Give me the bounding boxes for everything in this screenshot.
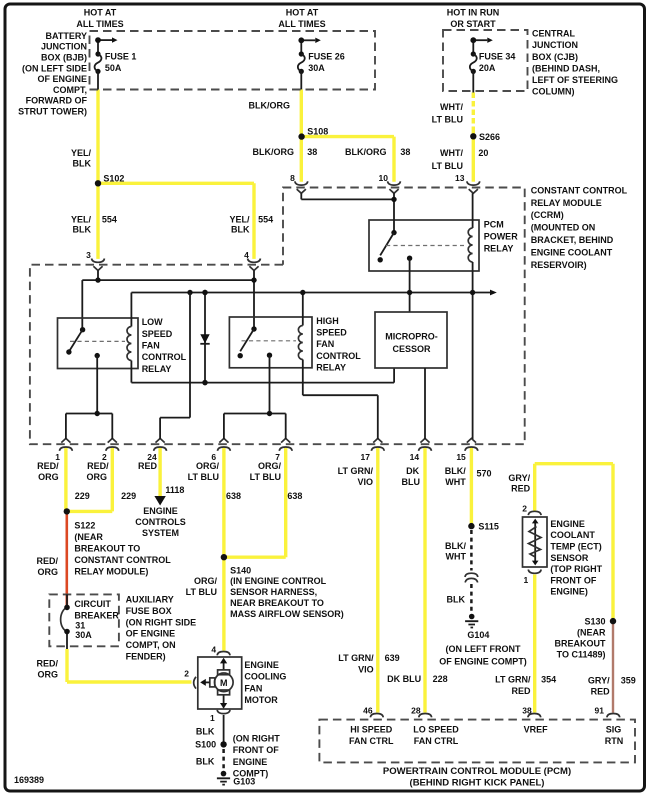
svg-text:ORG: ORG (37, 567, 58, 577)
svg-text:BLK: BLK (231, 225, 250, 235)
svg-text:(ON LEFT SIDE: (ON LEFT SIDE (22, 63, 87, 73)
svg-text:4: 4 (244, 250, 249, 260)
svg-text:14: 14 (410, 452, 420, 462)
svg-text:LT GRN/: LT GRN/ (338, 653, 374, 663)
svg-text:RELAY: RELAY (316, 362, 346, 372)
svg-text:BREAKER: BREAKER (74, 610, 119, 620)
svg-text:BLK/ORG: BLK/ORG (253, 147, 295, 157)
svg-text:RED: RED (591, 687, 611, 697)
svg-text:S266: S266 (479, 132, 500, 142)
svg-text:RELAY MODULE): RELAY MODULE) (74, 566, 148, 576)
svg-text:LT BLU: LT BLU (186, 587, 217, 597)
svg-text:MICROPRO-: MICROPRO- (385, 331, 438, 341)
svg-text:229: 229 (75, 491, 90, 501)
svg-text:BLU: BLU (402, 477, 421, 487)
svg-text:FAN: FAN (244, 683, 262, 693)
svg-text:46: 46 (363, 705, 373, 715)
svg-text:(BEHIND DASH,: (BEHIND DASH, (532, 63, 600, 73)
svg-text:GRY/: GRY/ (508, 473, 530, 483)
svg-text:BLK: BLK (73, 158, 92, 168)
svg-text:COMPT): COMPT) (233, 769, 268, 779)
svg-text:ENGINE COOLANT: ENGINE COOLANT (531, 247, 613, 257)
svg-text:ENGINE: ENGINE (233, 757, 268, 767)
svg-text:S102: S102 (103, 174, 124, 184)
svg-text:FAN: FAN (316, 339, 334, 349)
svg-text:639: 639 (385, 653, 400, 663)
svg-text:2: 2 (522, 504, 527, 514)
svg-text:DK BLU: DK BLU (387, 674, 421, 684)
svg-text:554: 554 (258, 214, 273, 224)
svg-text:(MOUNTED ON: (MOUNTED ON (531, 223, 596, 233)
svg-text:91: 91 (595, 705, 605, 715)
svg-text:RED/: RED/ (36, 659, 58, 669)
svg-text:RELAY MODULE: RELAY MODULE (531, 198, 602, 208)
svg-text:BLK: BLK (196, 726, 215, 736)
svg-text:ENGINE): ENGINE) (550, 587, 588, 597)
svg-text:RED: RED (511, 484, 531, 494)
svg-text:VREF: VREF (524, 724, 549, 734)
svg-text:CONSTANT CONTROL: CONSTANT CONTROL (74, 555, 171, 565)
svg-text:LT GRN/: LT GRN/ (495, 675, 531, 685)
svg-text:SENSOR: SENSOR (550, 553, 589, 563)
svg-text:ORG: ORG (38, 472, 59, 482)
svg-text:CONTROL: CONTROL (316, 351, 361, 361)
svg-text:BLK/ORG: BLK/ORG (345, 147, 387, 157)
svg-text:LOW: LOW (142, 317, 163, 327)
svg-text:169389: 169389 (14, 775, 44, 785)
svg-text:JUNCTION: JUNCTION (532, 40, 578, 50)
svg-text:RTN: RTN (605, 736, 624, 746)
svg-text:RELAY: RELAY (484, 244, 514, 254)
svg-text:LT GRN/: LT GRN/ (338, 466, 374, 476)
svg-text:YEL/: YEL/ (71, 148, 92, 158)
svg-text:SPEED: SPEED (316, 328, 347, 338)
svg-text:RED: RED (138, 461, 158, 471)
svg-text:20A: 20A (479, 63, 496, 73)
svg-text:S130: S130 (584, 616, 605, 626)
svg-text:WHT/: WHT/ (440, 148, 463, 158)
svg-text:SIG: SIG (606, 724, 622, 734)
svg-text:638: 638 (226, 491, 241, 501)
svg-text:38: 38 (522, 705, 532, 715)
svg-text:BOX (CJB): BOX (CJB) (532, 52, 578, 62)
svg-text:28: 28 (411, 705, 421, 715)
svg-text:BLK/ORG: BLK/ORG (249, 101, 291, 111)
svg-text:(NEAR: (NEAR (577, 627, 606, 637)
svg-text:554: 554 (102, 214, 117, 224)
svg-text:HOT AT: HOT AT (84, 8, 117, 18)
svg-text:TO C11489): TO C11489) (557, 649, 606, 659)
svg-text:BLK: BLK (196, 756, 215, 766)
svg-text:CONTROL: CONTROL (142, 352, 187, 362)
svg-text:229: 229 (121, 491, 136, 501)
svg-text:13: 13 (455, 173, 465, 183)
svg-text:(TOP RIGHT: (TOP RIGHT (550, 564, 602, 574)
svg-text:YEL/: YEL/ (229, 214, 250, 224)
svg-text:RED/: RED/ (87, 461, 109, 471)
svg-text:NEAR BREAKOUT TO: NEAR BREAKOUT TO (230, 598, 324, 608)
svg-text:BLK/: BLK/ (445, 466, 466, 476)
svg-text:(CCRM): (CCRM) (531, 210, 564, 220)
svg-text:GRY/: GRY/ (588, 675, 610, 685)
svg-text:VIO: VIO (357, 477, 373, 487)
svg-text:HOT IN RUN: HOT IN RUN (447, 8, 500, 18)
svg-text:ORG/: ORG/ (194, 576, 218, 586)
svg-text:SYSTEM: SYSTEM (142, 528, 179, 538)
svg-text:COOLING: COOLING (244, 672, 286, 682)
svg-text:(IN ENGINE CONTROL: (IN ENGINE CONTROL (230, 576, 327, 586)
svg-text:354: 354 (541, 675, 556, 685)
svg-text:38: 38 (307, 147, 317, 157)
svg-text:YEL/: YEL/ (71, 214, 92, 224)
svg-text:G104: G104 (467, 630, 489, 640)
svg-text:S100: S100 (195, 740, 216, 750)
svg-text:3: 3 (86, 250, 91, 260)
svg-text:S115: S115 (478, 522, 499, 532)
svg-text:HIGH: HIGH (316, 316, 339, 326)
svg-text:ORG/: ORG/ (196, 461, 220, 471)
svg-text:PCM: PCM (484, 220, 504, 230)
svg-text:CENTRAL: CENTRAL (532, 29, 575, 39)
svg-text:POWERTRAIN CONTROL MODULE (PCM: POWERTRAIN CONTROL MODULE (PCM) (383, 766, 571, 777)
svg-text:(ON RIGHT SIDE: (ON RIGHT SIDE (126, 617, 197, 627)
svg-text:BLK: BLK (447, 595, 466, 605)
svg-text:JUNCTION: JUNCTION (41, 42, 87, 52)
svg-text:ORG/: ORG/ (258, 461, 282, 471)
svg-text:570: 570 (477, 468, 492, 478)
svg-text:FUSE 26: FUSE 26 (308, 52, 345, 62)
svg-text:COMPT, ON: COMPT, ON (126, 640, 176, 650)
svg-text:WHT: WHT (446, 551, 467, 561)
svg-text:HOT AT: HOT AT (286, 8, 319, 18)
svg-text:(NEAR: (NEAR (74, 532, 103, 542)
svg-text:30A: 30A (75, 630, 92, 640)
svg-text:LT BLU: LT BLU (188, 472, 219, 482)
svg-text:FAN CTRL: FAN CTRL (414, 736, 459, 746)
svg-text:BOX (BJB): BOX (BJB) (41, 53, 87, 63)
svg-text:ALL TIMES: ALL TIMES (76, 19, 123, 29)
svg-text:2: 2 (184, 669, 189, 679)
svg-text:FUSE BOX: FUSE BOX (126, 606, 172, 616)
svg-text:OF ENGINE: OF ENGINE (37, 74, 87, 84)
svg-text:RELAY: RELAY (142, 364, 172, 374)
svg-text:1: 1 (210, 713, 215, 723)
svg-text:WHT/: WHT/ (440, 102, 463, 112)
svg-text:LEFT OF STEERING: LEFT OF STEERING (532, 75, 618, 85)
svg-text:COLUMN): COLUMN) (532, 87, 575, 97)
svg-text:SENSOR HARNESS,: SENSOR HARNESS, (230, 587, 317, 597)
svg-text:15: 15 (456, 452, 466, 462)
svg-text:LT BLU: LT BLU (250, 472, 281, 482)
svg-text:COMPT,: COMPT, (53, 85, 87, 95)
svg-text:ALL TIMES: ALL TIMES (278, 19, 325, 29)
svg-text:FUSE 1: FUSE 1 (105, 52, 137, 62)
svg-text:38: 38 (400, 147, 410, 157)
svg-text:FAN: FAN (142, 341, 160, 351)
svg-text:DK: DK (406, 466, 419, 476)
svg-text:BRACKET, BEHIND: BRACKET, BEHIND (531, 235, 614, 245)
svg-text:8: 8 (290, 173, 295, 183)
svg-text:CONSTANT CONTROL: CONSTANT CONTROL (531, 185, 628, 195)
svg-text:(ON RIGHT: (ON RIGHT (233, 734, 280, 744)
svg-text:RED/: RED/ (37, 461, 59, 471)
svg-text:50A: 50A (105, 63, 122, 73)
svg-text:STRUT TOWER): STRUT TOWER) (18, 107, 87, 117)
svg-text:ENGINE: ENGINE (244, 660, 279, 670)
svg-text:BLK: BLK (73, 225, 92, 235)
svg-text:(ON LEFT FRONT: (ON LEFT FRONT (446, 644, 521, 654)
svg-text:BLK/: BLK/ (445, 541, 466, 551)
svg-text:FRONT OF: FRONT OF (233, 745, 279, 755)
svg-text:LT BLU: LT BLU (432, 114, 463, 124)
svg-text:FAN CTRL: FAN CTRL (349, 736, 394, 746)
svg-text:SPEED: SPEED (142, 329, 173, 339)
svg-text:FENDER): FENDER) (126, 652, 166, 662)
svg-text:ENGINE: ENGINE (143, 506, 178, 516)
svg-text:1: 1 (523, 575, 528, 585)
svg-text:BREAKOUT TO: BREAKOUT TO (74, 544, 140, 554)
svg-text:CONTROLS: CONTROLS (135, 517, 186, 527)
svg-text:10: 10 (379, 173, 389, 183)
svg-text:CESSOR: CESSOR (392, 344, 431, 354)
svg-text:WHT: WHT (445, 477, 466, 487)
svg-text:OF ENGINE: OF ENGINE (126, 629, 176, 639)
svg-text:FRONT OF: FRONT OF (550, 575, 596, 585)
svg-text:4: 4 (211, 644, 216, 654)
svg-text:BREAKOUT: BREAKOUT (555, 638, 607, 648)
svg-text:S108: S108 (307, 126, 328, 136)
svg-text:S122: S122 (74, 521, 95, 531)
svg-text:228: 228 (433, 674, 448, 684)
svg-text:RESERVOIR): RESERVOIR) (531, 260, 587, 270)
svg-text:17: 17 (361, 452, 371, 462)
svg-text:RED/: RED/ (36, 556, 58, 566)
svg-text:FORWARD OF: FORWARD OF (26, 96, 88, 106)
svg-text:(BEHIND RIGHT KICK PANEL): (BEHIND RIGHT KICK PANEL) (410, 778, 545, 789)
svg-text:ENGINE: ENGINE (550, 519, 585, 529)
svg-text:20: 20 (478, 148, 488, 158)
svg-text:TEMP (ECT): TEMP (ECT) (550, 542, 601, 552)
svg-text:POWER: POWER (484, 232, 519, 242)
svg-text:638: 638 (287, 491, 302, 501)
svg-text:BATTERY: BATTERY (46, 31, 88, 41)
svg-text:LT BLU: LT BLU (432, 161, 463, 171)
svg-text:HI SPEED: HI SPEED (350, 724, 393, 734)
svg-text:M: M (220, 678, 228, 688)
svg-text:S140: S140 (230, 566, 251, 576)
svg-text:MOTOR: MOTOR (244, 695, 278, 705)
svg-text:OF ENGINE COMPT): OF ENGINE COMPT) (439, 656, 527, 666)
svg-text:MASS AIRFLOW SENSOR): MASS AIRFLOW SENSOR) (230, 609, 344, 619)
svg-text:30A: 30A (308, 63, 325, 73)
svg-text:359: 359 (621, 675, 636, 685)
svg-text:ORG: ORG (86, 472, 107, 482)
svg-text:OR START: OR START (450, 19, 496, 29)
svg-text:FUSE 34: FUSE 34 (479, 52, 516, 62)
svg-text:ORG: ORG (37, 670, 58, 680)
svg-text:CIRCUIT: CIRCUIT (74, 599, 111, 609)
svg-text:VIO: VIO (358, 664, 374, 674)
svg-text:AUXILIARY: AUXILIARY (126, 595, 174, 605)
svg-text:LO SPEED: LO SPEED (413, 724, 459, 734)
svg-text:1118: 1118 (165, 485, 184, 495)
svg-text:COOLANT: COOLANT (550, 530, 595, 540)
svg-text:RED: RED (511, 686, 531, 696)
